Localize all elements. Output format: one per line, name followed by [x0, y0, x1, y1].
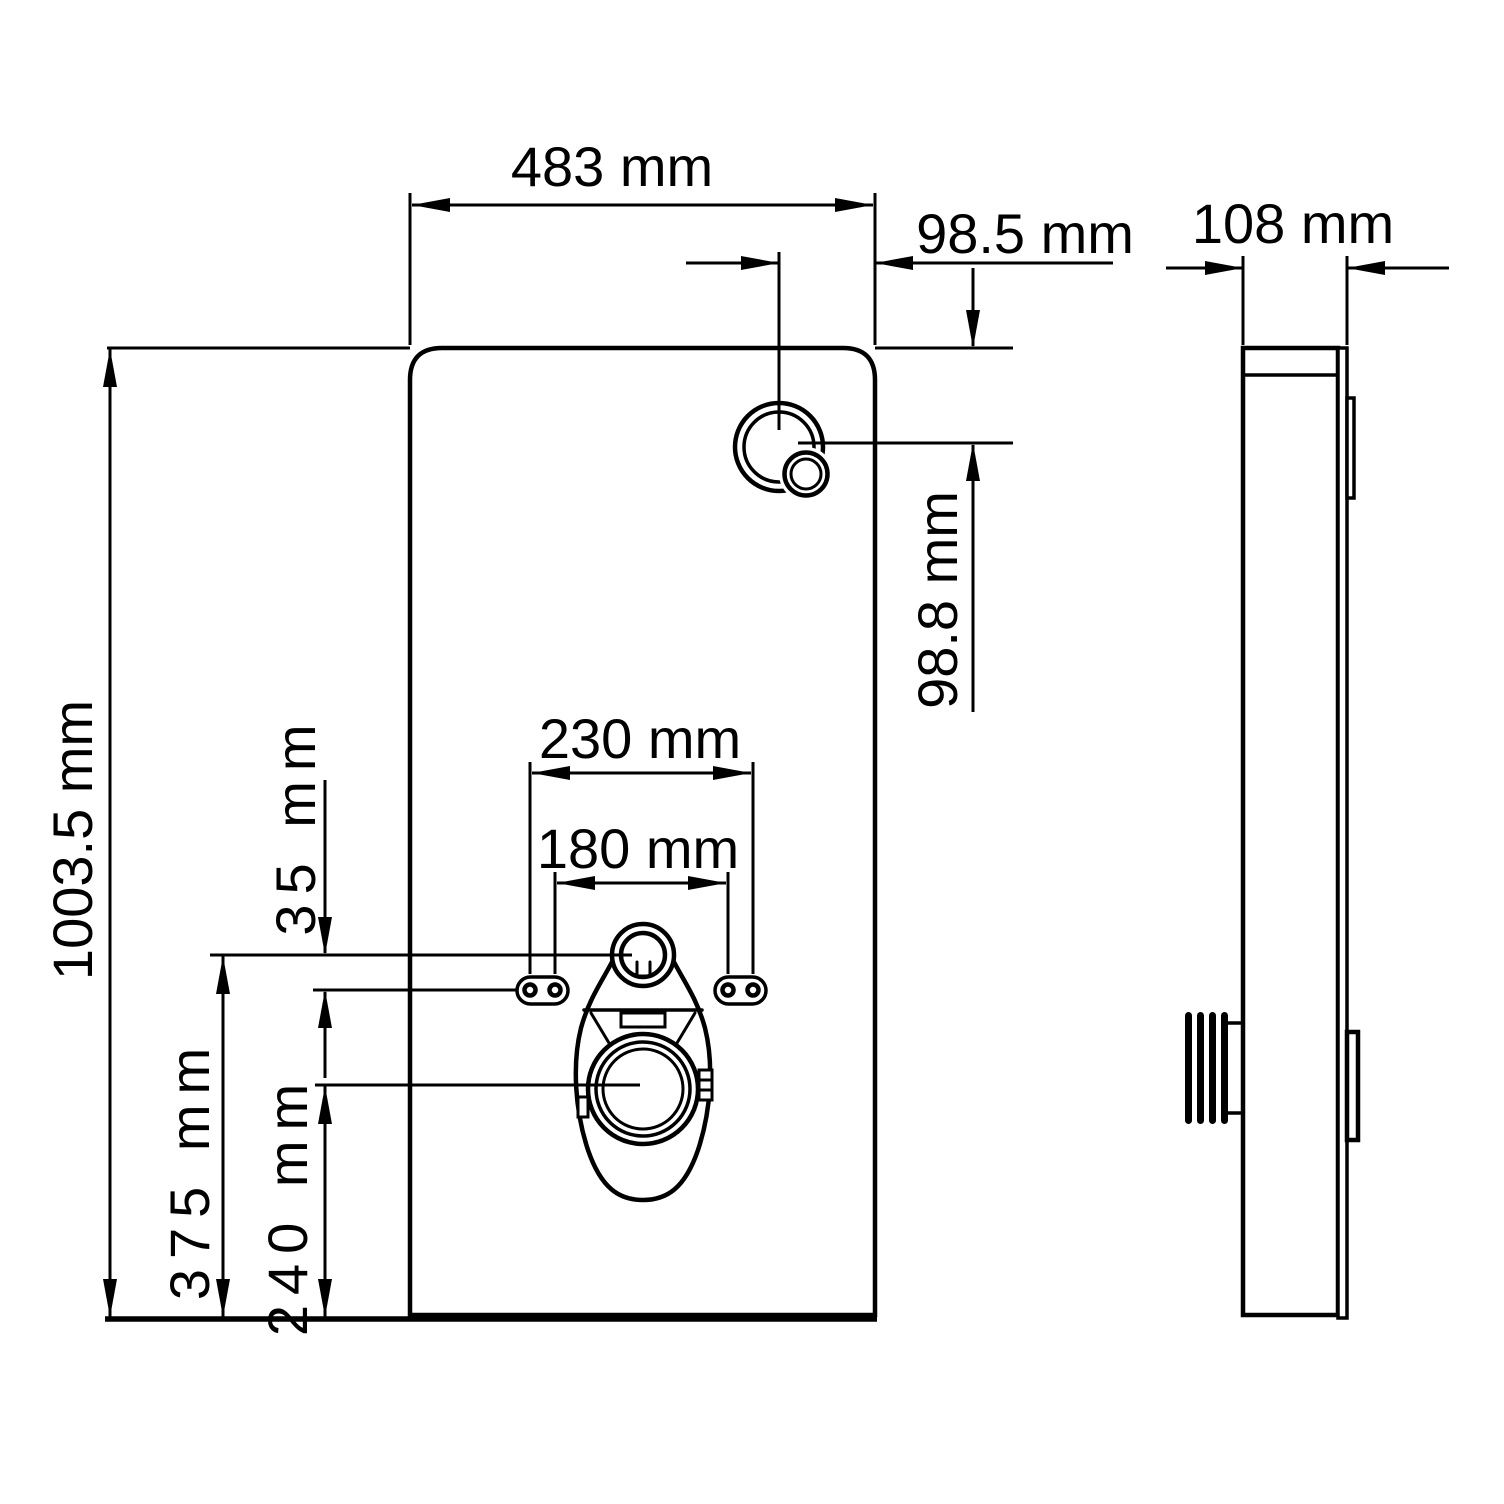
technical-drawing-page: 483 mm 98.5 mm 98.8 mm 230 mm 180 mm [0, 0, 1504, 1504]
dim-label-inlet-above-holes: 35 mm [264, 714, 327, 935]
dim-panel-width: 483 mm [410, 135, 875, 345]
dim-outlet-height: 240 mm [256, 1074, 332, 1336]
dim-inlet-height: 375 mm [158, 956, 230, 1317]
dim-panel-height: 1003.5 mm [41, 349, 117, 1317]
dim-label-panel-height: 1003.5 mm [41, 700, 104, 980]
drain-latch-right [699, 1070, 712, 1100]
left-plate-hole-outer [525, 985, 536, 996]
side-view [1185, 348, 1358, 1318]
dimension-drawing: 483 mm 98.5 mm 98.8 mm 230 mm 180 mm [0, 0, 1504, 1504]
dim-label-holes-inner: 180 mm [537, 817, 739, 880]
dim-label-button-from-right: 98.5 mm [916, 202, 1134, 265]
fitting-clip [621, 1013, 665, 1027]
side-drain-bump [1347, 1032, 1358, 1140]
side-corrugated-pipe [1185, 1012, 1243, 1124]
drain-tab-left [578, 1097, 588, 1117]
dim-inlet-above-holes: 35 mm [264, 714, 332, 1078]
pipe-rib-1 [1185, 1012, 1192, 1124]
dim-label-button-from-top: 98.8 mm [906, 491, 969, 709]
dim-label-side-depth: 108 mm [1192, 192, 1394, 255]
dim-label-outlet-height: 240 mm [256, 1074, 319, 1336]
dim-side-depth: 108 mm [1166, 192, 1449, 345]
right-plate-hole-inner [723, 985, 734, 996]
pipe-rib-4 [1221, 1012, 1228, 1124]
side-button-bump [1347, 398, 1354, 498]
dim-label-panel-width: 483 mm [511, 135, 713, 198]
left-plate-hole-inner [550, 985, 561, 996]
right-plate-hole-outer [748, 985, 759, 996]
dim-label-inlet-height: 375 mm [158, 1038, 221, 1300]
side-body [1243, 348, 1338, 1315]
pipe-rib-3 [1209, 1012, 1216, 1124]
dim-label-holes-outer: 230 mm [539, 707, 741, 770]
pipe-rib-2 [1197, 1012, 1204, 1124]
